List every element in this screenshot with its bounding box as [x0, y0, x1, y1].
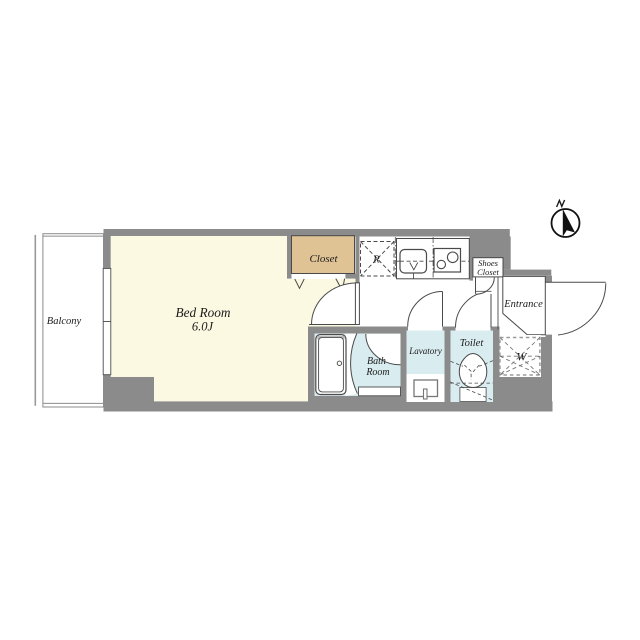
- svg-text:W: W: [517, 350, 528, 364]
- svg-text:6.0J: 6.0J: [192, 320, 215, 334]
- svg-text:R: R: [372, 255, 380, 266]
- svg-text:Bath: Bath: [367, 356, 386, 367]
- svg-text:Toilet: Toilet: [460, 338, 485, 349]
- svg-text:Bed Room: Bed Room: [175, 305, 230, 320]
- svg-text:Closet: Closet: [477, 267, 499, 277]
- svg-text:Closet: Closet: [309, 253, 338, 265]
- svg-text:Balcony: Balcony: [47, 316, 82, 327]
- svg-text:Room: Room: [365, 367, 389, 378]
- svg-text:Lavatory: Lavatory: [408, 346, 442, 356]
- svg-text:Entrance: Entrance: [503, 299, 543, 310]
